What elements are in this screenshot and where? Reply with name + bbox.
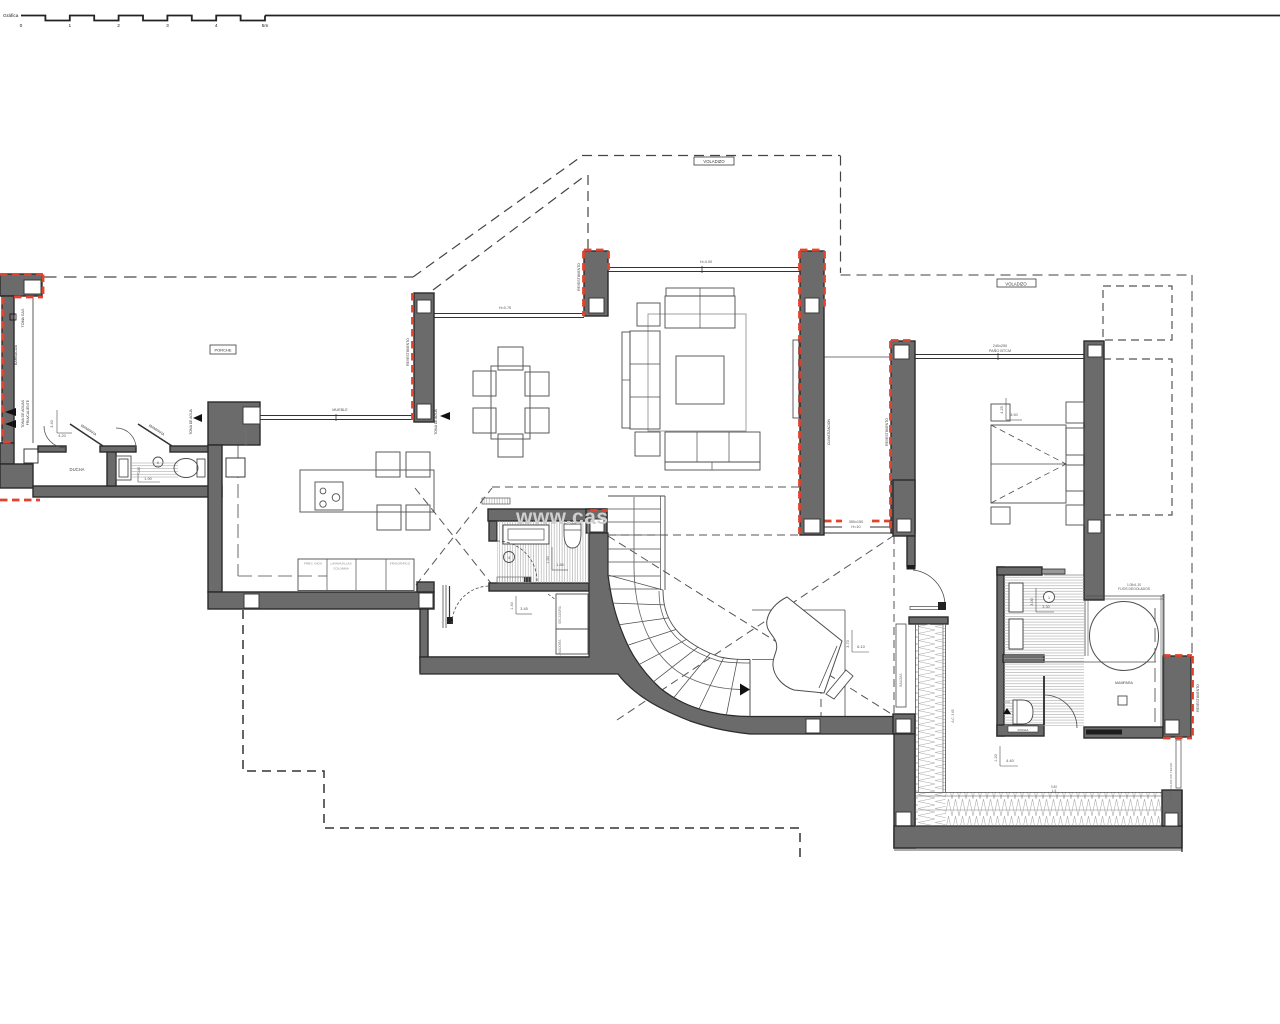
svg-text:www.cas: www.cas <box>515 506 609 529</box>
svg-text:4.40: 4.40 <box>1006 758 1015 763</box>
svg-text:LAVADORA: LAVADORA <box>558 639 562 657</box>
svg-text:TOMA DE AGUA: TOMA DE AGUA <box>189 408 193 434</box>
svg-text:3.70: 3.70 <box>846 640 850 647</box>
svg-text:BARBACOA: BARBACOA <box>14 344 18 365</box>
svg-text:SECADORA: SECADORA <box>558 605 562 624</box>
svg-text:3.45: 3.45 <box>520 607 527 611</box>
svg-text:BOMBA CALOR A/C TECHO: BOMBA CALOR A/C TECHO <box>1169 762 1173 801</box>
svg-text:3.40: 3.40 <box>50 420 54 427</box>
svg-text:0.80: 0.80 <box>137 467 141 474</box>
svg-text:4.25: 4.25 <box>1000 406 1004 413</box>
svg-text:BALIZAS: BALIZAS <box>899 673 903 686</box>
svg-text:3: 3 <box>166 23 169 29</box>
svg-text:FREG. INOX: FREG. INOX <box>304 562 322 566</box>
svg-text:240x250: 240x250 <box>993 344 1008 348</box>
svg-text:H=4.00: H=4.00 <box>700 260 712 264</box>
svg-text:1.40: 1.40 <box>510 602 514 609</box>
svg-text:COLUMNA: COLUMNA <box>333 567 349 571</box>
svg-text:VOLADIZO: VOLADIZO <box>703 159 725 164</box>
svg-text:4: 4 <box>215 23 218 29</box>
svg-text:REVESTIMIENTO: REVESTIMIENTO <box>885 418 889 446</box>
svg-text:4.20: 4.20 <box>58 434 65 438</box>
svg-text:1.85: 1.85 <box>556 563 563 567</box>
svg-text:TOMA GAS: TOMA GAS <box>21 308 25 327</box>
svg-text:1.90: 1.90 <box>144 477 151 481</box>
svg-text:TOMA DE AGUAS: TOMA DE AGUAS <box>21 399 25 428</box>
svg-text:1.50: 1.50 <box>546 556 550 563</box>
svg-text:0: 0 <box>20 23 23 29</box>
svg-text:REVESTIMIENTO: REVESTIMIENTO <box>406 338 410 366</box>
svg-text:1: 1 <box>68 23 71 29</box>
svg-text:2: 2 <box>117 23 120 29</box>
svg-text:3.30: 3.30 <box>1042 605 1049 609</box>
svg-text:5m: 5m <box>262 23 269 29</box>
svg-text:MAMPARA: MAMPARA <box>1115 681 1134 685</box>
svg-text:LAVAVAJILLAS: LAVAVAJILLAS <box>330 562 351 566</box>
svg-text:1: 1 <box>1048 596 1050 600</box>
svg-text:TOMA DE AGUA: TOMA DE AGUA <box>434 408 438 434</box>
svg-text:3.00: 3.00 <box>1030 598 1034 605</box>
svg-text:ARM. LLEN: ARM. LLEN <box>244 428 248 446</box>
svg-text:1.20: 1.20 <box>994 754 998 761</box>
svg-text:350x150: 350x150 <box>849 520 864 524</box>
svg-text:H=10: H=10 <box>851 525 860 529</box>
svg-text:Gráfica: Gráfica <box>3 13 19 19</box>
svg-text:H=0.75: H=0.75 <box>499 306 511 310</box>
svg-text:FRIGORIFICO: FRIGORIFICO <box>390 562 411 566</box>
svg-text:DUCHA: DUCHA <box>70 467 85 472</box>
svg-text:A.C. 3.65: A.C. 3.65 <box>951 709 955 723</box>
svg-text:3.50: 3.50 <box>1010 413 1017 417</box>
svg-text:FIJOS DEGOLADOS: FIJOS DEGOLADOS <box>1118 587 1151 591</box>
svg-text:PAÑO BTCM: PAÑO BTCM <box>989 348 1011 353</box>
svg-text:1.5: 1.5 <box>1052 789 1057 793</box>
svg-text:1.05x1.20: 1.05x1.20 <box>1127 583 1141 587</box>
svg-text:MUEBLE: MUEBLE <box>332 408 348 412</box>
svg-text:DUCHA: DUCHA <box>1018 728 1029 732</box>
svg-text:FRIA/CALIENTE: FRIA/CALIENTE <box>26 399 30 425</box>
svg-text:6.10: 6.10 <box>857 644 866 649</box>
svg-text:VOLADIZO: VOLADIZO <box>1005 281 1027 286</box>
svg-text:PORCHE: PORCHE <box>214 348 231 353</box>
svg-text:4: 4 <box>508 556 510 560</box>
svg-text:REVESTIMIENTO: REVESTIMIENTO <box>1196 684 1200 712</box>
svg-text:REVESTIMIENTO: REVESTIMIENTO <box>577 263 581 291</box>
svg-text:INOD.: INOD. <box>1003 700 1011 704</box>
svg-text:CLIMATIZACION: CLIMATIZACION <box>827 418 831 444</box>
